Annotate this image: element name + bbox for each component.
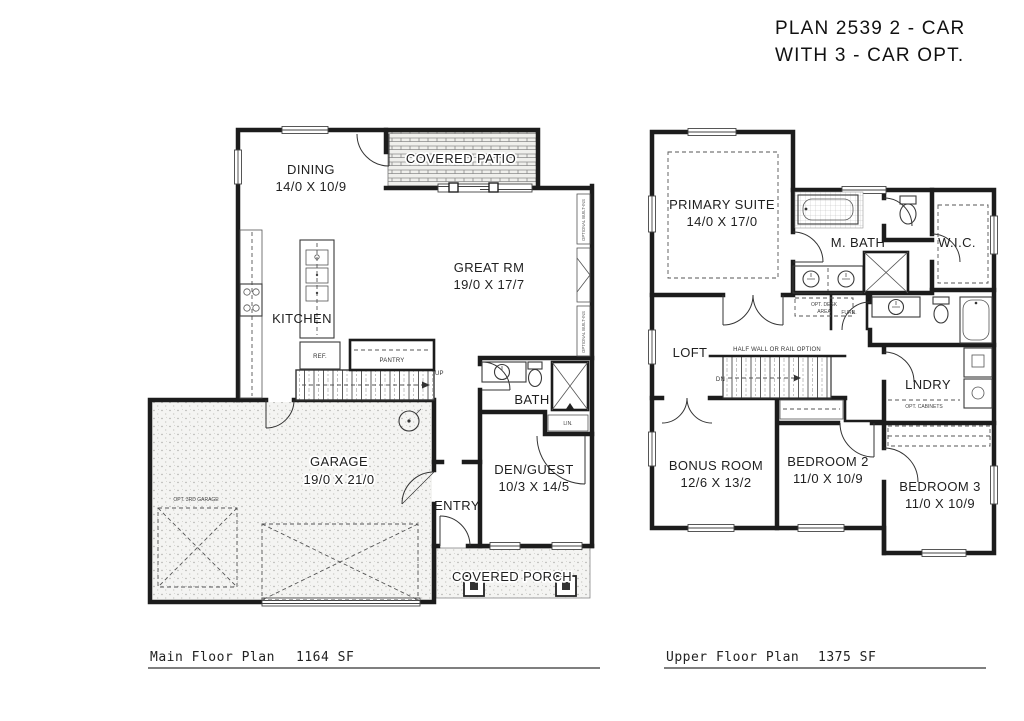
- toilet-icon: [900, 196, 916, 224]
- bedroom2-label: BEDROOM 2: [787, 454, 869, 469]
- hall-bath-fixtures: [872, 297, 992, 343]
- plan-title-line2: WITH 3 - CAR OPT.: [775, 45, 964, 66]
- window: [552, 543, 582, 550]
- lndry-label: LNDRY: [905, 377, 951, 392]
- washer-icon: [964, 348, 992, 377]
- bath-label: BATH: [514, 392, 549, 407]
- window: [991, 466, 998, 504]
- kitchen-label: KITCHEN: [272, 311, 332, 326]
- patio-post: [489, 183, 498, 192]
- bedroom2-dims: 11/0 X 10/9: [793, 471, 863, 486]
- pantry-label: PANTRY: [380, 358, 405, 364]
- main-floor-plan: UP REF.: [150, 127, 592, 607]
- pantry: PANTRY: [350, 340, 434, 370]
- window: [282, 127, 328, 134]
- floor-plan-drawing: PLAN 2539 2 - CAR WITH 3 - CAR OPT.: [0, 0, 1024, 721]
- window: [235, 150, 242, 184]
- furnace-label: FURN.: [841, 310, 856, 316]
- upper-floor-area: 1375 SF: [818, 650, 876, 665]
- main-floor-area: 1164 SF: [296, 650, 354, 665]
- covered-patio-label: COVERED PATIO: [406, 151, 516, 166]
- refrigerator: REF.: [300, 342, 340, 369]
- upper-floor-caption: Upper Floor Plan: [666, 650, 799, 665]
- half-wall-note: HALF WALL OR RAIL OPTION: [733, 347, 821, 353]
- stairs-up: UP: [296, 370, 444, 400]
- stairs-up-label: UP: [435, 371, 444, 377]
- bedroom3-closet: [888, 426, 990, 446]
- dining-dims: 14/0 X 10/9: [276, 179, 347, 194]
- garage-dims: 19/0 X 21/0: [304, 472, 375, 487]
- stairs-down-label: DN: [716, 377, 725, 383]
- entry-label: ENTRY: [434, 498, 480, 513]
- bedroom3-dims: 11/0 X 10/9: [905, 496, 975, 511]
- primary-suite-label: PRIMARY SUITE: [669, 197, 775, 212]
- upper-floor-labels: PRIMARY SUITE 14/0 X 17/0 M. BATH W.I.C.…: [669, 197, 981, 511]
- covered-porch-label: COVERED PORCH: [452, 569, 572, 584]
- loft-label: LOFT: [673, 345, 708, 360]
- bonus-room-dims: 12/6 X 13/2: [681, 475, 752, 490]
- window: [490, 543, 520, 550]
- den-guest-dims: 10/3 X 14/5: [499, 479, 570, 494]
- linen-label: LIN.: [563, 421, 572, 427]
- great-rm-dims: 19/0 X 17/7: [454, 277, 525, 292]
- window: [922, 550, 966, 557]
- optional-built-ins: OPTIONAL BUILT-INS OPTIONAL BUILT-INS: [577, 194, 590, 356]
- den-guest-label: DEN/GUEST: [494, 462, 573, 477]
- toilet-icon: [933, 297, 949, 323]
- great-rm-label: GREAT RM: [454, 260, 525, 275]
- floor-plan-sheet: PLAN 2539 2 - CAR WITH 3 - CAR OPT.: [0, 0, 1024, 721]
- tub-icon: [960, 297, 992, 343]
- garage-label: GARAGE: [310, 454, 368, 469]
- opt-3rd-garage-label: OPT. 3RD GARAGE: [173, 497, 219, 503]
- plan-title: PLAN 2539 2 - CAR WITH 3 - CAR OPT.: [775, 18, 965, 66]
- shower: [552, 362, 588, 410]
- opt-desk-label2: AREA: [817, 309, 831, 315]
- window: [649, 196, 656, 232]
- window: [688, 525, 734, 532]
- toilet-icon: [528, 362, 542, 387]
- window: [798, 525, 844, 532]
- primary-suite-dims: 14/0 X 17/0: [687, 214, 758, 229]
- opt-desk-label1: OPT. DESK: [811, 302, 838, 308]
- bedroom3-label: BEDROOM 3: [899, 479, 981, 494]
- captions: Main Floor Plan 1164 SF Upper Floor Plan…: [148, 650, 986, 668]
- window: [649, 330, 656, 364]
- window: [649, 432, 656, 466]
- optional-built-ins-label: OPTIONAL BUILT-INS: [581, 311, 586, 353]
- optional-built-ins-label: OPTIONAL BUILT-INS: [581, 199, 586, 241]
- double-vanity: [793, 266, 863, 293]
- dryer-icon: [964, 379, 992, 408]
- linen-closet: LIN.: [548, 415, 588, 431]
- patio-post: [449, 183, 458, 192]
- upper-floor-plan: HALF WALL OR RAIL OPTION DN: [649, 129, 998, 557]
- wic-label: W.I.C.: [938, 235, 976, 250]
- range: [240, 284, 262, 316]
- bonus-room-label: BONUS ROOM: [669, 458, 763, 473]
- furnace-closet: FURN.: [841, 310, 856, 316]
- main-floor-caption: Main Floor Plan: [150, 650, 275, 665]
- window: [991, 216, 998, 254]
- garage-door: [262, 598, 420, 606]
- dining-label: DINING: [287, 162, 335, 177]
- m-bath-label: M. BATH: [831, 235, 886, 250]
- window: [688, 129, 736, 136]
- ref-label: REF.: [313, 354, 327, 360]
- plan-title-line1: PLAN 2539 2 - CAR: [775, 18, 965, 39]
- shower: [864, 252, 908, 293]
- opt-cabinets-label: OPT. CABINETS: [905, 404, 943, 410]
